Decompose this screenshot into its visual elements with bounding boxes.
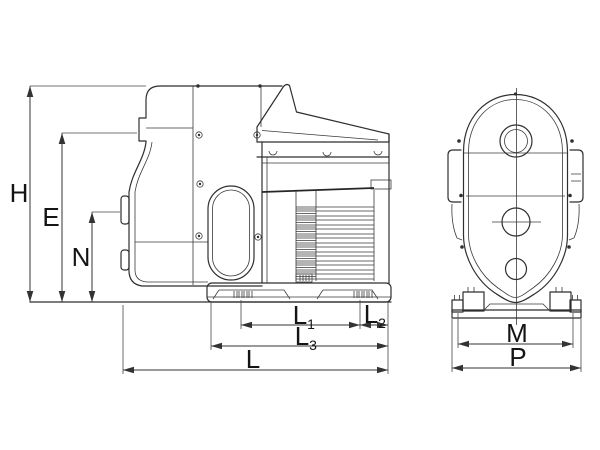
drain-detail	[296, 274, 312, 282]
dim-label-L2: L	[364, 299, 378, 329]
left-boss-lower	[121, 250, 129, 270]
front-view	[448, 88, 583, 325]
top-cover-beak	[257, 84, 389, 142]
dim-label-L3: L	[295, 321, 309, 351]
motor-clip	[371, 180, 391, 189]
ear-right-detail	[571, 174, 581, 181]
top-cover-inner-line	[262, 131, 378, 141]
left-boss-upper	[121, 196, 129, 224]
drain-hatch	[300, 275, 309, 281]
pedestal-bolts	[468, 287, 562, 292]
pump-body-outline	[129, 86, 262, 286]
dim-label-L3-sub: 3	[309, 337, 317, 353]
pump-casing-oval-inner	[213, 190, 250, 276]
dim-label-H: H	[10, 178, 29, 208]
foot-pad-left	[213, 290, 290, 299]
dim-label-N: N	[72, 242, 91, 272]
technical-drawing: H E N L 1 L 2 L 3 L M P	[0, 0, 600, 450]
band-notches	[269, 151, 382, 156]
front-body-outer	[464, 95, 568, 303]
drain-circle	[506, 259, 527, 280]
fin-block-top	[262, 188, 374, 192]
port-circle-inner	[505, 130, 528, 153]
front-bolt-dots	[457, 139, 574, 249]
base-side-view	[207, 274, 391, 302]
ear-left-taper	[452, 204, 462, 240]
dim-label-L2-sub: 2	[378, 315, 386, 331]
pedestal-right	[550, 292, 571, 311]
side-view	[121, 84, 391, 302]
pedestal-left	[463, 292, 484, 311]
body-screws	[196, 84, 262, 240]
dimension-system: H E N L 1 L 2 L 3 L M P	[10, 86, 581, 374]
dim-label-L: L	[246, 344, 260, 374]
ear-right	[570, 150, 583, 202]
dim-label-E: E	[42, 202, 59, 232]
ear-left	[448, 150, 461, 202]
drawing-canvas: H E N L 1 L 2 L 3 L M P	[0, 0, 600, 450]
dim-label-P: P	[509, 342, 526, 372]
ear-right-taper	[569, 204, 579, 240]
dome-top-mark	[514, 92, 517, 95]
pump-inner-contour	[135, 142, 208, 282]
